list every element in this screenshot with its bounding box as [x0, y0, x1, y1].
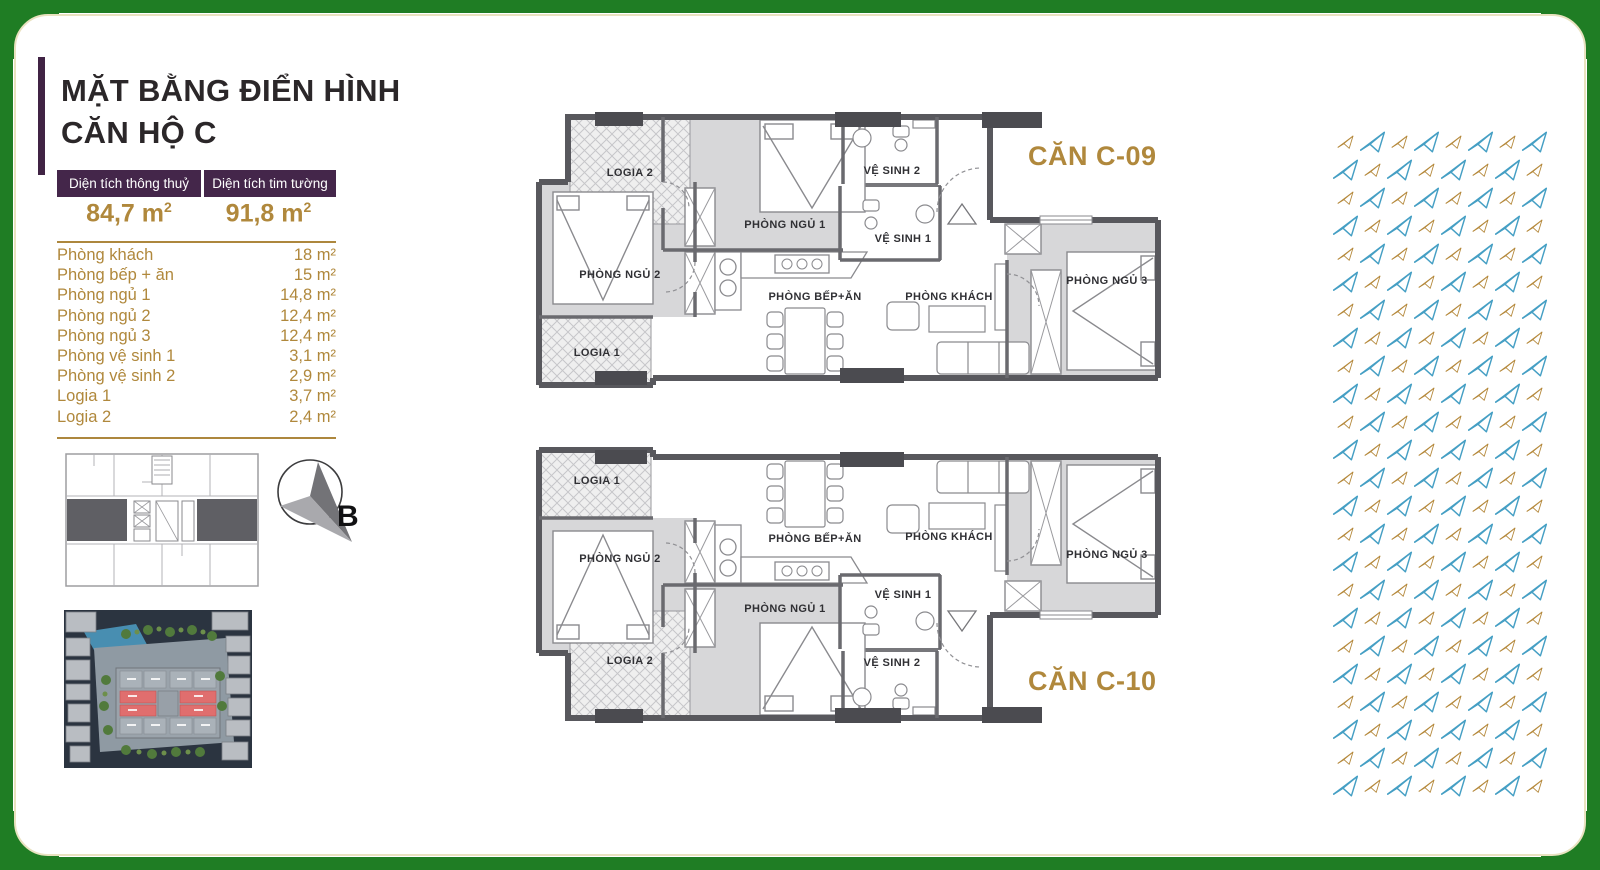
pattern-cell — [1521, 464, 1548, 492]
pattern-cell — [1386, 156, 1413, 184]
pattern-cell — [1521, 240, 1548, 268]
paper-plane-icon — [1332, 437, 1359, 464]
pattern-cell — [1386, 548, 1413, 576]
pattern-cell — [1359, 604, 1386, 632]
pattern-cell — [1521, 660, 1548, 688]
pattern-cell — [1332, 352, 1359, 380]
pattern-cell — [1413, 576, 1440, 604]
pattern-cell — [1440, 268, 1467, 296]
paper-plane-icon — [1364, 498, 1381, 515]
paper-plane-icon — [1386, 381, 1413, 408]
pattern-cell — [1440, 128, 1467, 156]
paper-plane-icon — [1445, 358, 1462, 375]
floorplate-key-diagram — [64, 452, 260, 588]
room-label-bedroom3: PHÒNG NGỦ 3 — [1066, 548, 1147, 561]
pattern-cell — [1521, 744, 1548, 772]
paper-plane-icon — [1445, 470, 1462, 487]
paper-plane-icon — [1364, 610, 1381, 627]
pattern-cell — [1440, 548, 1467, 576]
pattern-cell — [1467, 464, 1494, 492]
paper-plane-icon — [1472, 722, 1489, 739]
paper-plane-icon — [1445, 750, 1462, 767]
paper-plane-icon — [1499, 582, 1516, 599]
room-row: Logia 22,4 m² — [57, 407, 336, 427]
paper-plane-icon — [1332, 773, 1359, 800]
paper-plane-icon — [1521, 633, 1548, 660]
paper-plane-icon — [1337, 414, 1354, 431]
pattern-cell — [1332, 744, 1359, 772]
pattern-cell — [1521, 324, 1548, 352]
paper-plane-icon — [1364, 666, 1381, 683]
paper-plane-icon — [1364, 778, 1381, 795]
paper-plane-icon — [1494, 605, 1521, 632]
pattern-cell — [1467, 492, 1494, 520]
paper-plane-icon — [1445, 190, 1462, 207]
pattern-cell — [1521, 716, 1548, 744]
pattern-cell — [1413, 324, 1440, 352]
paper-plane-icon — [1413, 577, 1440, 604]
paper-plane-icon — [1521, 353, 1548, 380]
paper-plane-icon — [1364, 386, 1381, 403]
room-row: Phòng ngủ 312,4 m² — [57, 326, 336, 346]
paper-plane-icon — [1418, 610, 1435, 627]
pattern-cell — [1413, 240, 1440, 268]
paper-plane-icon — [1413, 129, 1440, 156]
pattern-cell — [1467, 156, 1494, 184]
paper-plane-icon — [1472, 554, 1489, 571]
pattern-cell — [1332, 520, 1359, 548]
paper-plane-icon — [1526, 778, 1543, 795]
paper-plane-icon — [1467, 521, 1494, 548]
pattern-cell — [1413, 632, 1440, 660]
paper-plane-icon — [1494, 661, 1521, 688]
pattern-cell — [1440, 604, 1467, 632]
net-area-value: 84,7 m2 — [57, 199, 201, 228]
pattern-cell — [1494, 464, 1521, 492]
paper-plane-icon — [1332, 381, 1359, 408]
paper-plane-icon — [1445, 638, 1462, 655]
pattern-cell — [1521, 576, 1548, 604]
paper-plane-icon — [1413, 745, 1440, 772]
paper-plane-icon — [1386, 661, 1413, 688]
paper-plane-icon — [1494, 325, 1521, 352]
paper-plane-icon — [1499, 526, 1516, 543]
pattern-cell — [1332, 156, 1359, 184]
pattern-cell — [1413, 688, 1440, 716]
pattern-cell — [1332, 604, 1359, 632]
paper-plane-icon — [1472, 666, 1489, 683]
paper-plane-icon — [1418, 274, 1435, 291]
paper-plane-icon — [1332, 661, 1359, 688]
pattern-cell — [1494, 772, 1521, 800]
pattern-cell — [1359, 772, 1386, 800]
pattern-cell — [1332, 548, 1359, 576]
paper-plane-icon — [1440, 437, 1467, 464]
pattern-cell — [1332, 576, 1359, 604]
pattern-cell — [1386, 128, 1413, 156]
paper-plane-icon — [1391, 694, 1408, 711]
pattern-cell — [1494, 156, 1521, 184]
pattern-cell — [1386, 492, 1413, 520]
pattern-cell — [1521, 604, 1548, 632]
paper-plane-icon — [1359, 633, 1386, 660]
room-row: Phòng khách18 m² — [57, 245, 336, 265]
paper-plane-icon — [1391, 582, 1408, 599]
pattern-cell — [1494, 184, 1521, 212]
pattern-cell — [1440, 324, 1467, 352]
pattern-cell — [1413, 772, 1440, 800]
pattern-cell — [1332, 632, 1359, 660]
paper-plane-icon — [1391, 750, 1408, 767]
pattern-cell — [1494, 408, 1521, 436]
pattern-cell — [1413, 380, 1440, 408]
paper-plane-icon — [1440, 269, 1467, 296]
pattern-cell — [1386, 520, 1413, 548]
paper-plane-icon — [1472, 330, 1489, 347]
pattern-cell — [1521, 268, 1548, 296]
pattern-cell — [1467, 520, 1494, 548]
paper-plane-icon — [1359, 409, 1386, 436]
paper-plane-icon — [1359, 465, 1386, 492]
paper-plane-icon — [1413, 185, 1440, 212]
paper-plane-icon — [1391, 414, 1408, 431]
paper-plane-icon — [1494, 269, 1521, 296]
paper-plane-icon — [1364, 442, 1381, 459]
paper-plane-icon — [1364, 162, 1381, 179]
pattern-cell — [1332, 184, 1359, 212]
pattern-cell — [1494, 660, 1521, 688]
pattern-cell — [1440, 212, 1467, 240]
room-label-bath1: VỆ SINH 1 — [875, 232, 932, 245]
pattern-cell — [1386, 576, 1413, 604]
paper-plane-icon — [1413, 297, 1440, 324]
pattern-cell — [1494, 520, 1521, 548]
paper-plane-icon — [1391, 246, 1408, 263]
room-label-bath2: VỆ SINH 2 — [864, 656, 921, 669]
pattern-cell — [1413, 716, 1440, 744]
paper-plane-icon — [1364, 554, 1381, 571]
paper-plane-icon — [1391, 358, 1408, 375]
paper-plane-icon — [1494, 549, 1521, 576]
page-title-line2: CĂN HỘ C — [61, 112, 401, 154]
pattern-cell — [1332, 464, 1359, 492]
pattern-cell — [1467, 128, 1494, 156]
paper-plane-icon — [1359, 129, 1386, 156]
pattern-cell — [1521, 380, 1548, 408]
room-label-living: PHÒNG KHÁCH — [905, 290, 993, 303]
area-table-header: Diện tích thông thuỷ Diện tích tim tường — [57, 170, 336, 197]
paper-plane-icon — [1499, 134, 1516, 151]
paper-plane-icon — [1472, 162, 1489, 179]
pattern-cell — [1332, 268, 1359, 296]
pattern-cell — [1440, 240, 1467, 268]
pattern-cell — [1521, 436, 1548, 464]
paper-plane-icon — [1494, 213, 1521, 240]
pattern-cell — [1386, 632, 1413, 660]
pattern-cell — [1494, 212, 1521, 240]
pattern-cell — [1467, 604, 1494, 632]
pattern-cell — [1440, 688, 1467, 716]
paper-plane-icon — [1521, 297, 1548, 324]
pattern-cell — [1494, 576, 1521, 604]
paper-plane-icon — [1391, 134, 1408, 151]
paper-plane-icon — [1413, 633, 1440, 660]
paper-plane-icon — [1472, 274, 1489, 291]
paper-plane-icon — [1386, 437, 1413, 464]
pattern-cell — [1521, 632, 1548, 660]
paper-plane-icon — [1440, 381, 1467, 408]
pattern-cell — [1467, 408, 1494, 436]
pattern-cell — [1386, 268, 1413, 296]
paper-plane-icon — [1440, 717, 1467, 744]
pattern-cell — [1494, 604, 1521, 632]
paper-plane-icon — [1337, 694, 1354, 711]
paper-plane-icon — [1445, 694, 1462, 711]
paper-plane-icon — [1499, 358, 1516, 375]
paper-plane-icon — [1467, 409, 1494, 436]
paper-plane-icon — [1494, 157, 1521, 184]
paper-plane-icon — [1526, 610, 1543, 627]
pattern-cell — [1494, 128, 1521, 156]
paper-plane-icon — [1472, 610, 1489, 627]
pattern-cell — [1359, 408, 1386, 436]
pattern-cell — [1467, 772, 1494, 800]
paper-plane-icon — [1526, 442, 1543, 459]
paper-plane-icon — [1467, 241, 1494, 268]
pattern-cell — [1386, 688, 1413, 716]
pattern-cell — [1386, 352, 1413, 380]
room-row: Logia 13,7 m² — [57, 386, 336, 406]
paper-plane-icon — [1337, 470, 1354, 487]
paper-plane-icon — [1359, 241, 1386, 268]
pattern-cell — [1467, 576, 1494, 604]
pattern-cell — [1467, 296, 1494, 324]
pattern-cell — [1467, 688, 1494, 716]
pattern-cell — [1494, 716, 1521, 744]
paper-plane-icon — [1526, 666, 1543, 683]
pattern-cell — [1521, 688, 1548, 716]
paper-plane-icon — [1332, 269, 1359, 296]
pattern-cell — [1467, 660, 1494, 688]
pattern-cell — [1359, 352, 1386, 380]
paper-plane-icon — [1440, 605, 1467, 632]
pattern-cell — [1332, 660, 1359, 688]
paper-plane-icon — [1440, 213, 1467, 240]
paper-plane-icon — [1494, 717, 1521, 744]
paper-plane-icon — [1521, 745, 1548, 772]
pattern-cell — [1359, 240, 1386, 268]
paper-plane-icon — [1526, 386, 1543, 403]
pattern-cell — [1413, 744, 1440, 772]
paper-plane-icon — [1467, 129, 1494, 156]
paper-plane-icon — [1521, 689, 1548, 716]
paper-plane-icon — [1521, 577, 1548, 604]
compass-direction-label: B — [337, 500, 359, 534]
pattern-cell — [1440, 772, 1467, 800]
pattern-cell — [1386, 744, 1413, 772]
paper-plane-icon — [1337, 638, 1354, 655]
paper-plane-icon — [1359, 745, 1386, 772]
pattern-cell — [1494, 436, 1521, 464]
paper-plane-icon — [1332, 605, 1359, 632]
room-label-logia2: LOGIA 2 — [607, 655, 653, 667]
pattern-cell — [1359, 184, 1386, 212]
pattern-cell — [1440, 576, 1467, 604]
pattern-cell — [1440, 632, 1467, 660]
pattern-cell — [1332, 296, 1359, 324]
paper-plane-icon — [1337, 526, 1354, 543]
pattern-cell — [1413, 464, 1440, 492]
pattern-cell — [1359, 268, 1386, 296]
pattern-cell — [1521, 408, 1548, 436]
paper-plane-icon — [1337, 190, 1354, 207]
paper-plane-icon — [1440, 549, 1467, 576]
paper-plane-icon — [1413, 465, 1440, 492]
page-title-line1: MẶT BẰNG ĐIỂN HÌNH — [61, 70, 401, 112]
pattern-cell — [1386, 772, 1413, 800]
paper-plane-icon — [1364, 218, 1381, 235]
paper-plane-icon — [1386, 157, 1413, 184]
pattern-cell — [1359, 324, 1386, 352]
pattern-cell — [1359, 380, 1386, 408]
paper-plane-icon — [1472, 442, 1489, 459]
paper-plane-icon — [1494, 381, 1521, 408]
pattern-cell — [1332, 408, 1359, 436]
paper-plane-icon — [1521, 241, 1548, 268]
pattern-cell — [1494, 324, 1521, 352]
pattern-cell — [1440, 296, 1467, 324]
pattern-cell — [1386, 604, 1413, 632]
paper-plane-icon — [1418, 386, 1435, 403]
paper-plane-icon — [1337, 358, 1354, 375]
pattern-cell — [1413, 660, 1440, 688]
paper-plane-icon — [1467, 297, 1494, 324]
paper-plane-icon — [1359, 297, 1386, 324]
room-label-kitchen: PHÒNG BẾP+ĂN — [768, 290, 861, 303]
pattern-cell — [1359, 492, 1386, 520]
pattern-cell — [1494, 688, 1521, 716]
paper-plane-icon — [1494, 773, 1521, 800]
pattern-cell — [1359, 156, 1386, 184]
paper-plane-icon — [1413, 689, 1440, 716]
paper-plane-icon — [1472, 498, 1489, 515]
pattern-cell — [1386, 240, 1413, 268]
pattern-cell — [1521, 772, 1548, 800]
pattern-cell — [1359, 632, 1386, 660]
pattern-cell — [1521, 156, 1548, 184]
plan-title-c10: CĂN C-10 — [1028, 666, 1157, 697]
room-row: Phòng vệ sinh 22,9 m² — [57, 366, 336, 386]
paper-plane-icon — [1386, 325, 1413, 352]
paper-plane-icon — [1337, 302, 1354, 319]
pattern-cell — [1494, 352, 1521, 380]
pattern-cell — [1359, 716, 1386, 744]
paper-plane-icon — [1467, 745, 1494, 772]
room-label-bedroom2: PHÒNG NGỦ 2 — [579, 268, 660, 281]
pattern-cell — [1359, 436, 1386, 464]
paper-plane-icon — [1472, 218, 1489, 235]
paper-plane-icon — [1499, 694, 1516, 711]
pattern-cell — [1386, 324, 1413, 352]
room-label-logia1: LOGIA 1 — [574, 475, 620, 487]
paper-plane-icon — [1337, 582, 1354, 599]
paper-plane-icon — [1332, 213, 1359, 240]
room-row: Phòng vệ sinh 13,1 m² — [57, 346, 336, 366]
pattern-cell — [1332, 716, 1359, 744]
paper-plane-icon — [1467, 465, 1494, 492]
paper-plane-icon — [1467, 689, 1494, 716]
paper-plane-icon — [1472, 778, 1489, 795]
paper-plane-icon — [1391, 526, 1408, 543]
paper-plane-icon — [1359, 577, 1386, 604]
room-label-bedroom3: PHÒNG NGỦ 3 — [1066, 274, 1147, 287]
pattern-cell — [1467, 632, 1494, 660]
pattern-cell — [1494, 268, 1521, 296]
pattern-cell — [1413, 156, 1440, 184]
pattern-cell — [1359, 576, 1386, 604]
pattern-cell — [1467, 184, 1494, 212]
paper-plane-icon — [1337, 750, 1354, 767]
pattern-cell — [1332, 772, 1359, 800]
paper-plane-icon — [1499, 302, 1516, 319]
paper-plane-icon — [1386, 773, 1413, 800]
paper-plane-icon — [1364, 274, 1381, 291]
room-label-kitchen: PHÒNG BẾP+ĂN — [768, 532, 861, 545]
pattern-cell — [1332, 212, 1359, 240]
paper-plane-icon — [1494, 437, 1521, 464]
paper-plane-icon — [1332, 493, 1359, 520]
paper-plane-icon — [1440, 773, 1467, 800]
pattern-cell — [1494, 492, 1521, 520]
paper-plane-icon — [1521, 409, 1548, 436]
paper-plane-icon — [1413, 521, 1440, 548]
pattern-cell — [1413, 492, 1440, 520]
pattern-cell — [1440, 520, 1467, 548]
pattern-cell — [1332, 380, 1359, 408]
paper-plane-icon — [1526, 498, 1543, 515]
paper-plane-icon — [1418, 778, 1435, 795]
pattern-cell — [1467, 352, 1494, 380]
room-label-bath1: VỆ SINH 1 — [875, 588, 932, 601]
header-net-area: Diện tích thông thuỷ — [57, 170, 201, 197]
paper-plane-icon — [1440, 493, 1467, 520]
pattern-cell — [1521, 212, 1548, 240]
paper-plane-icon — [1364, 722, 1381, 739]
pattern-cell — [1467, 716, 1494, 744]
paper-plane-icon — [1526, 722, 1543, 739]
paper-plane-icon — [1332, 717, 1359, 744]
paper-plane-icon — [1418, 554, 1435, 571]
paper-plane-icon — [1386, 549, 1413, 576]
pattern-cell — [1494, 380, 1521, 408]
plan-title-c09: CĂN C-09 — [1028, 141, 1157, 172]
paper-plane-icon — [1440, 157, 1467, 184]
paper-plane-icon — [1521, 129, 1548, 156]
pattern-cell — [1413, 520, 1440, 548]
paper-plane-icon — [1359, 521, 1386, 548]
paper-plane-icon — [1364, 330, 1381, 347]
pattern-cell — [1332, 492, 1359, 520]
pattern-cell — [1494, 296, 1521, 324]
paper-plane-icon — [1521, 465, 1548, 492]
room-label-bedroom2: PHÒNG NGỦ 2 — [579, 552, 660, 565]
pattern-cell — [1386, 184, 1413, 212]
paper-plane-icon — [1445, 526, 1462, 543]
plane-pattern — [1332, 128, 1548, 800]
pattern-cell — [1440, 492, 1467, 520]
paper-plane-icon — [1386, 493, 1413, 520]
paper-plane-icon — [1521, 521, 1548, 548]
